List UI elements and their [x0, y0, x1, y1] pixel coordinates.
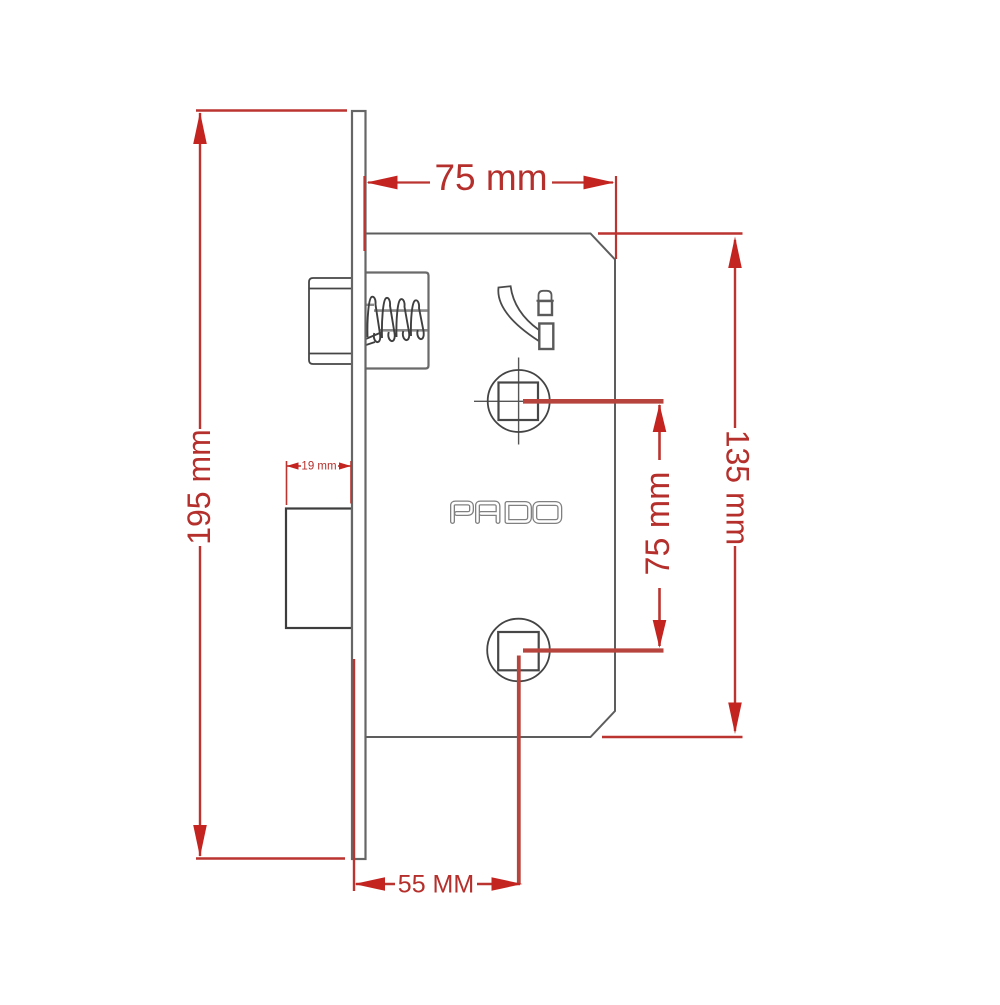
svg-text:135 mm: 135 mm	[720, 430, 756, 546]
svg-text:75 mm: 75 mm	[434, 157, 547, 198]
svg-text:75 mm: 75 mm	[639, 472, 677, 576]
svg-text:55 MM: 55 MM	[398, 871, 474, 899]
svg-text:19 mm: 19 mm	[301, 461, 336, 473]
svg-text:195 mm: 195 mm	[181, 429, 217, 545]
